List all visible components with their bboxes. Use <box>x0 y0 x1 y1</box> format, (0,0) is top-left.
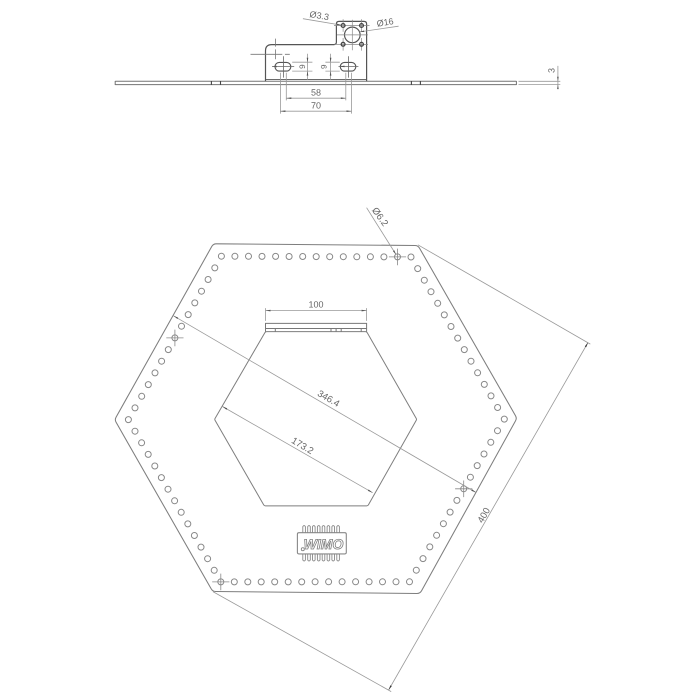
svg-text:173.2: 173.2 <box>289 435 315 457</box>
svg-text:70: 70 <box>311 100 321 110</box>
svg-text:400: 400 <box>476 506 493 525</box>
svg-text:WIMO: WIMO <box>304 536 344 552</box>
svg-text:100: 100 <box>308 300 323 310</box>
svg-text:58: 58 <box>311 88 321 98</box>
svg-text:9: 9 <box>298 64 307 69</box>
svg-text:3: 3 <box>547 68 557 73</box>
svg-text:9: 9 <box>320 64 329 69</box>
